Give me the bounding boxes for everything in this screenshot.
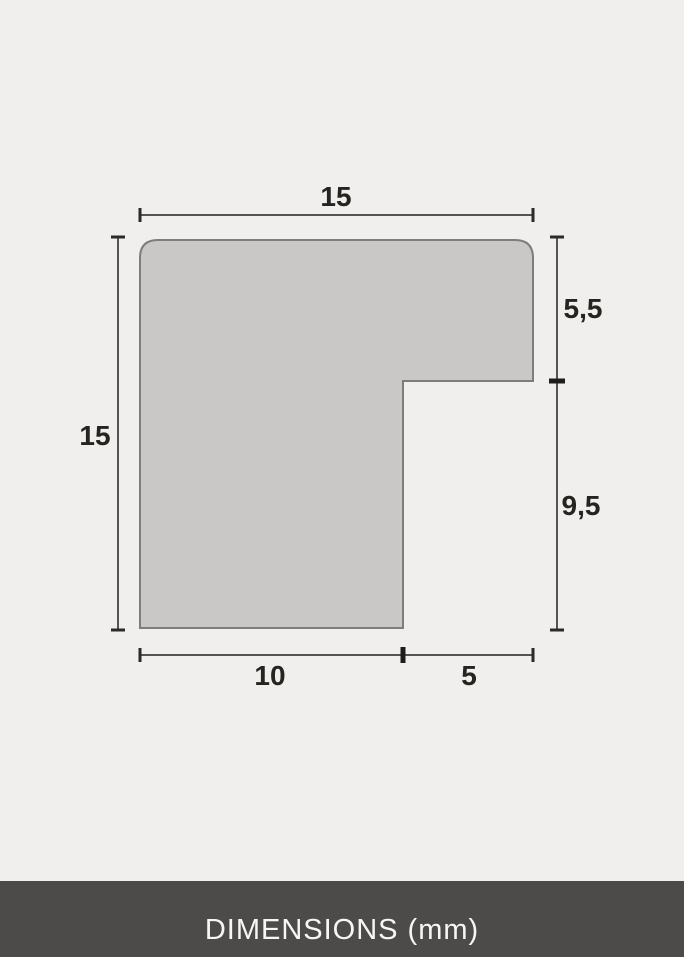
left-dimension-line xyxy=(111,237,125,630)
profile-diagram: 15 15 5,5 9,5 10 5 xyxy=(0,0,684,880)
left-height-label: 15 xyxy=(79,422,110,450)
right-upper-label: 5,5 xyxy=(564,295,603,323)
bottom-right-label: 5 xyxy=(461,662,477,690)
footer-title: DIMENSIONS (mm) xyxy=(205,916,479,945)
bottom-left-label: 10 xyxy=(254,662,285,690)
dimension-diagram-page: 15 15 5,5 9,5 10 5 DIMENSIONS (mm) xyxy=(0,0,684,957)
footer-bar: DIMENSIONS (mm) xyxy=(0,881,684,957)
top-width-label: 15 xyxy=(320,183,351,211)
right-lower-label: 9,5 xyxy=(562,492,601,520)
profile-shape xyxy=(140,240,533,628)
